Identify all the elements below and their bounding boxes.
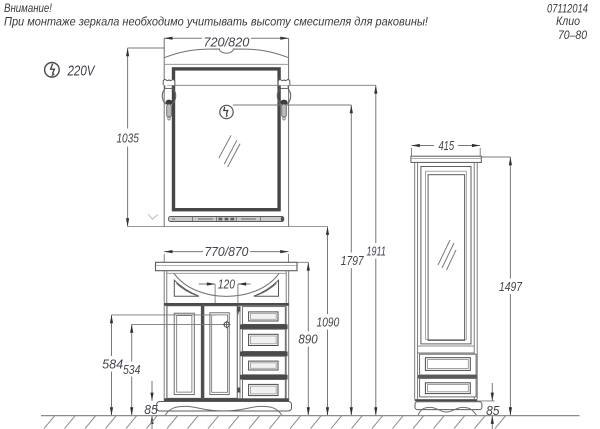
svg-text:Клио: Клио	[556, 16, 581, 28]
svg-text:1911: 1911	[367, 245, 386, 259]
svg-text:1497: 1497	[499, 280, 523, 294]
svg-text:1090: 1090	[317, 315, 340, 329]
svg-text:70–80: 70–80	[558, 30, 588, 42]
svg-text:415: 415	[438, 139, 454, 153]
svg-text:584: 584	[102, 357, 123, 371]
svg-text:890: 890	[298, 333, 317, 347]
svg-text:85: 85	[144, 403, 158, 417]
svg-text:120: 120	[218, 278, 235, 292]
svg-text:1035: 1035	[116, 131, 139, 145]
svg-text:534: 534	[123, 363, 140, 377]
svg-text:770/870: 770/870	[204, 245, 248, 259]
svg-text:720/820: 720/820	[203, 36, 249, 50]
svg-text:Внимание!: Внимание!	[4, 3, 53, 15]
svg-text:220V: 220V	[67, 62, 96, 79]
svg-text:1797: 1797	[341, 254, 365, 268]
svg-text:При монтаже зеркала необходимо: При монтаже зеркала необходимо учитывать…	[4, 17, 429, 29]
svg-text:07112014: 07112014	[547, 3, 588, 15]
